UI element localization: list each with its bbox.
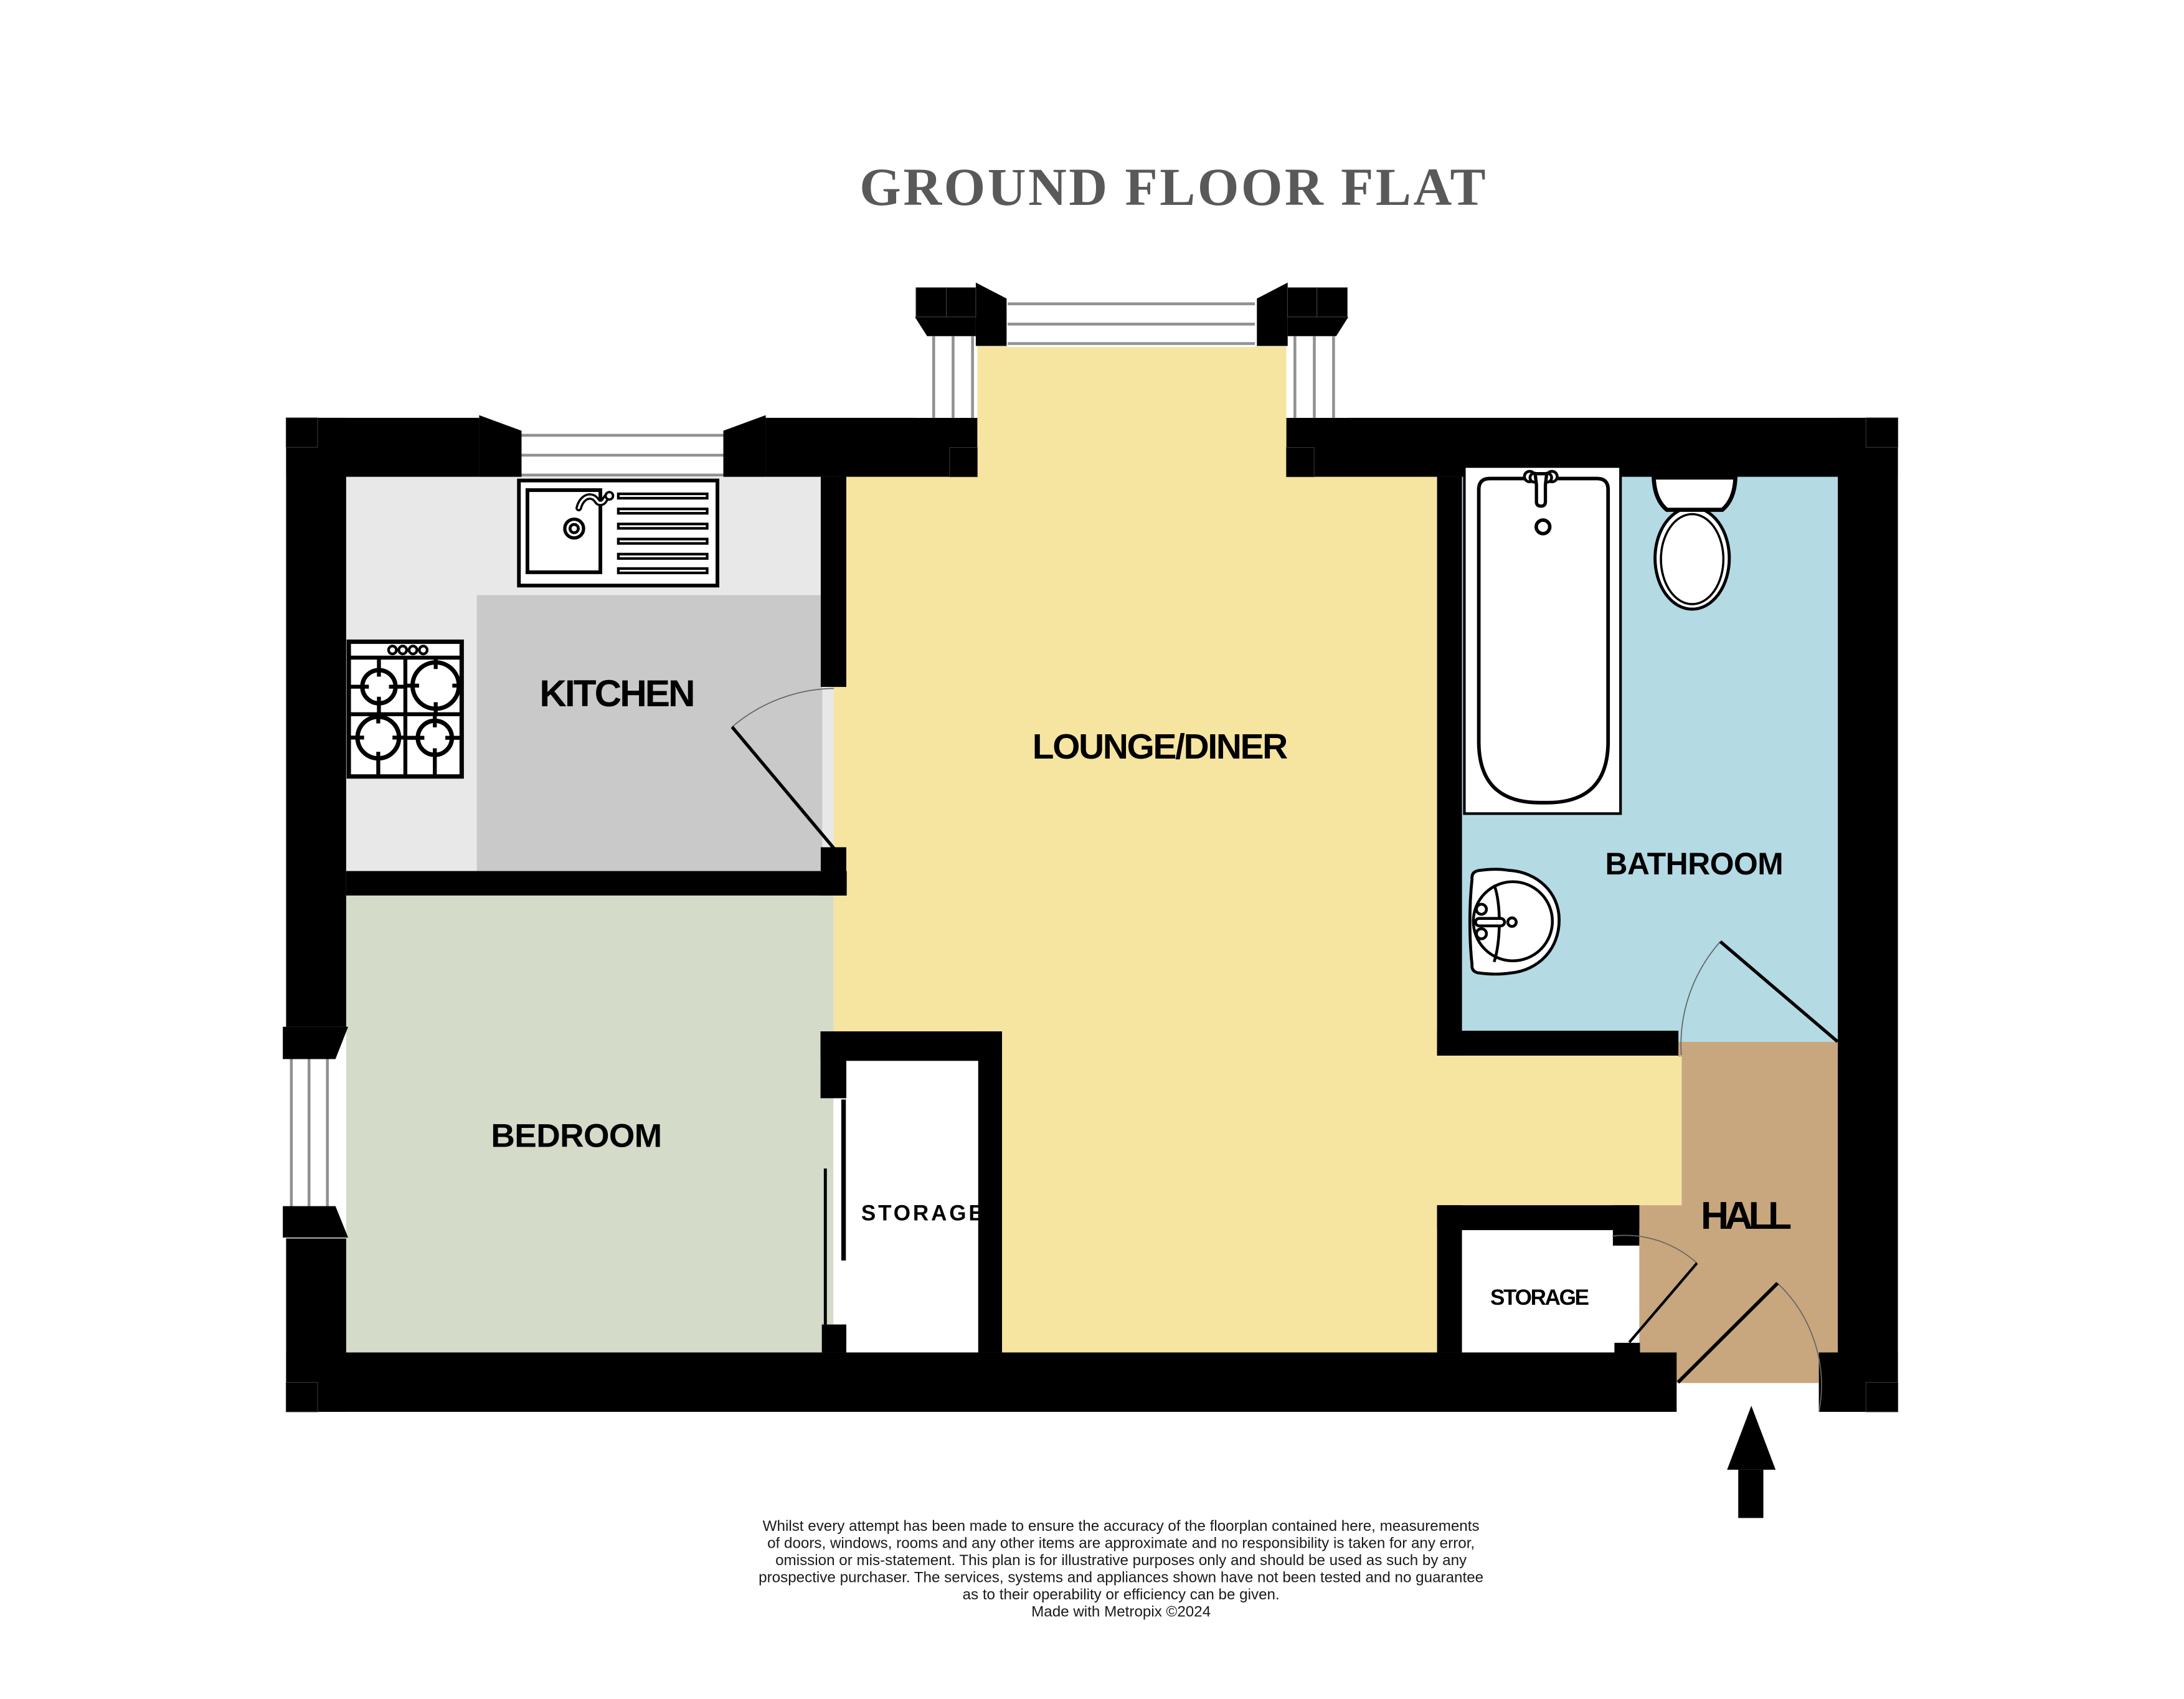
svg-text:BEDROOM: BEDROOM bbox=[491, 1118, 661, 1155]
svg-text:of doors, windows, rooms and a: of doors, windows, rooms and any other i… bbox=[767, 1535, 1475, 1552]
svg-text:GROUND FLOOR FLAT: GROUND FLOOR FLAT bbox=[859, 158, 1488, 217]
svg-text:BATHROOM: BATHROOM bbox=[1605, 846, 1783, 881]
svg-text:STORAGE: STORAGE bbox=[1490, 1285, 1589, 1310]
svg-text:Whilst every attempt has been: Whilst every attempt has been made to en… bbox=[763, 1518, 1480, 1535]
svg-text:STORAGE: STORAGE bbox=[861, 1201, 986, 1226]
svg-text:LOUNGE/DINER: LOUNGE/DINER bbox=[1033, 727, 1287, 767]
svg-text:as to their operability or eff: as to their operability or efficiency ca… bbox=[963, 1586, 1280, 1603]
svg-text:prospective purchaser. The ser: prospective purchaser. The services, sys… bbox=[759, 1569, 1483, 1586]
svg-text:omission or mis-statement. Thi: omission or mis-statement. This plan is … bbox=[775, 1552, 1467, 1569]
svg-text:KITCHEN: KITCHEN bbox=[539, 672, 693, 714]
svg-text:Made with Metropix ©2024: Made with Metropix ©2024 bbox=[1031, 1604, 1211, 1621]
svg-text:HALL: HALL bbox=[1701, 1194, 1791, 1238]
